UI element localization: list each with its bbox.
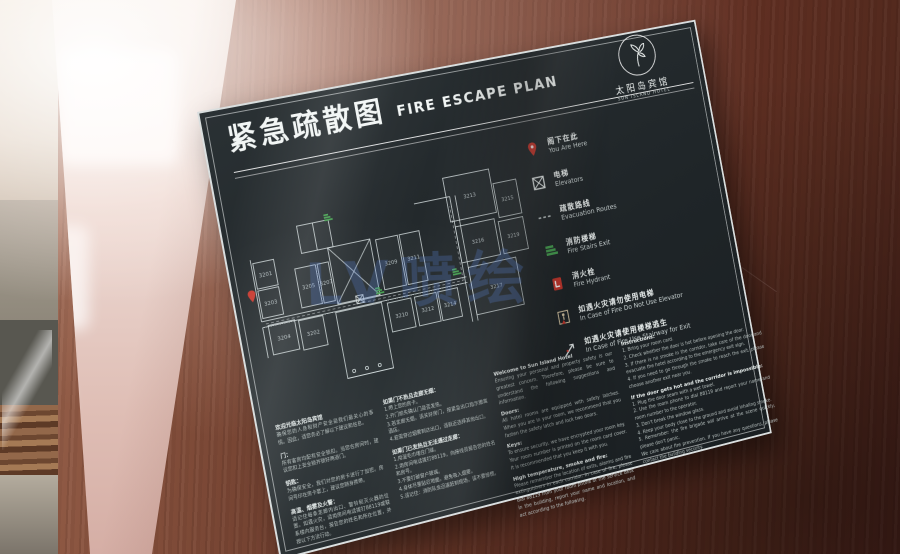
photo-scene: 紧急疏散图 FIRE ESCAPE PLAN 太阳岛宾馆 — [0, 0, 900, 554]
plan-wall — [414, 197, 450, 204]
plan-wall — [336, 302, 394, 378]
plan-room-3203: 3203 — [258, 287, 284, 319]
plan-you-are-here-pin — [247, 290, 257, 303]
plan-room-3217: 3217 — [468, 257, 524, 315]
you-are-here-pin-icon — [523, 139, 542, 159]
text-column-cn-instructions: 如果门不热且走廊无烟：1.带上您的房卡。 2.开门前先确认门是否发热。 3.若走… — [381, 371, 510, 549]
legend-labels: 消火栓Fire Hydrant — [571, 264, 611, 290]
window-reflection — [58, 50, 178, 165]
column-paragraph: 1.用湿毛巾堵住门缝。 2.用房间电话拨打88119，向接线员报告您的姓名和房号… — [393, 432, 501, 502]
plan-room-3210: 3210 — [387, 298, 416, 332]
logo-emblem-icon — [615, 32, 659, 79]
escape-plan-sign: 紧急疏散图 FIRE ESCAPE PLAN 太阳岛宾馆 — [197, 20, 768, 554]
plan-room-3219: 3219 — [498, 217, 528, 254]
glass-reflection — [2, 330, 52, 450]
plan-room-3212: 3212 — [414, 292, 441, 325]
hotel-logo: 太阳岛宾馆 SUN ISLAND HOTEL — [591, 27, 686, 105]
no-elevator-icon — [555, 308, 574, 328]
background-wall — [0, 0, 58, 200]
plan-wall — [263, 328, 269, 358]
text-column-en-info: Welcome to Sun Island HotelEnsuring your… — [493, 341, 638, 520]
legend-labels: 疏散路线Evacuation Routes — [559, 193, 617, 222]
evacuation-route-icon — [536, 207, 555, 227]
fire-hydrant-icon — [548, 274, 567, 294]
plan-room-3204: 3204 — [268, 320, 300, 355]
plan-room-3213: 3213 — [443, 169, 497, 222]
elevator-icon — [529, 173, 548, 193]
plan-room-3214: 3214 — [438, 288, 463, 321]
legend-labels: 电梯Elevators — [553, 166, 584, 190]
plan-room-3215: 3215 — [493, 179, 522, 218]
fire-stairs-icon — [542, 240, 561, 260]
plan-room-3202: 3202 — [299, 315, 329, 350]
room-background-strip — [0, 0, 58, 554]
legend-labels: 消防楼梯Fire Stairs Exit — [565, 229, 611, 256]
background-floor — [0, 200, 58, 320]
sign-panel: 紧急疏散图 FIRE ESCAPE PLAN 太阳岛宾馆 — [197, 20, 772, 554]
plan-fire-stairs-icon — [323, 213, 333, 221]
plan-room-3201: 3201 — [253, 259, 278, 289]
text-column-cn-info: 欢迎光临太阳岛宾馆确保您的人身和财产安全是我们最关心的事情。因此，请您务必了解以… — [274, 397, 399, 554]
legend-labels: 阁下在此You Are Here — [547, 130, 589, 155]
plan-room-3216: 3216 — [455, 219, 500, 263]
background-floor-lower — [0, 475, 58, 554]
plan-fire-stairs-icon — [452, 267, 461, 275]
